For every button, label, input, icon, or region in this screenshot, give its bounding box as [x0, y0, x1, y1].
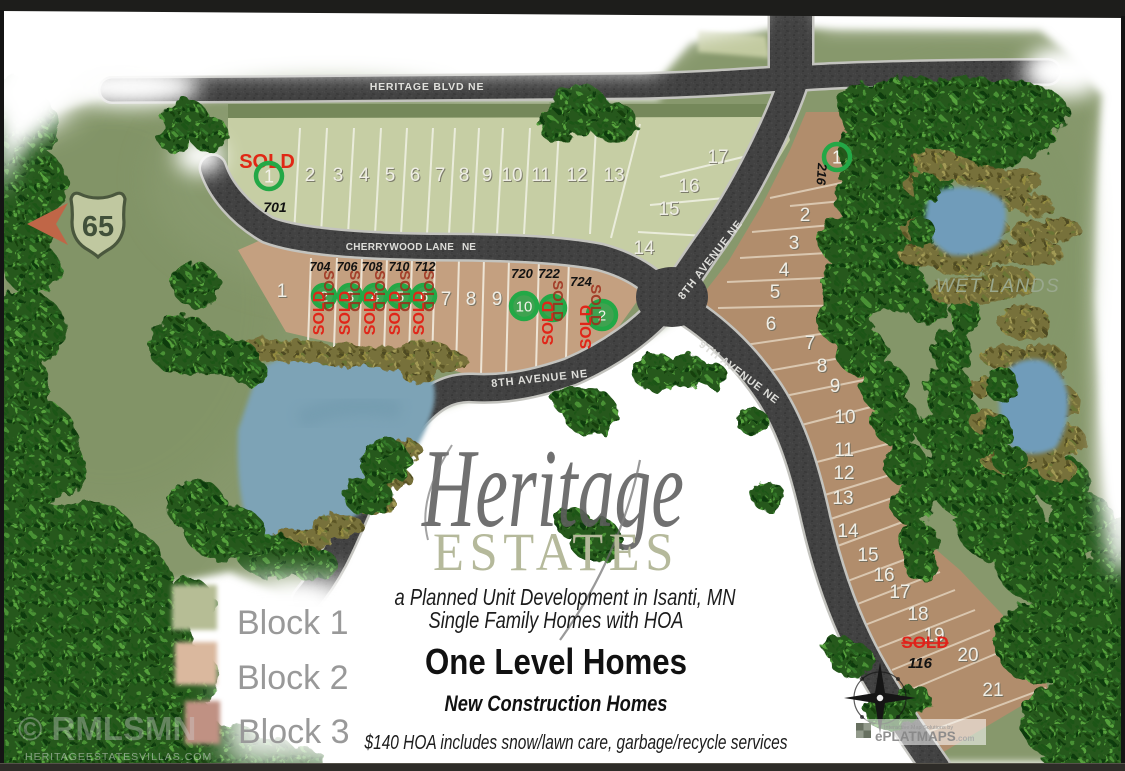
svg-text:15: 15	[857, 545, 878, 566]
svg-text:SOLD: SOLD	[337, 291, 354, 335]
svg-text:2: 2	[305, 165, 316, 186]
svg-text:16: 16	[678, 176, 699, 197]
svg-text:14: 14	[837, 521, 859, 542]
svg-text:8: 8	[817, 356, 828, 377]
svg-text:8: 8	[466, 289, 477, 310]
svg-text:3: 3	[789, 233, 800, 254]
svg-text:3: 3	[333, 165, 344, 186]
svg-text:10: 10	[834, 407, 855, 428]
svg-text:7: 7	[805, 333, 816, 354]
svg-text:CHERRYWOOD LANE: CHERRYWOOD LANE	[346, 242, 455, 253]
svg-text:701: 701	[263, 199, 287, 215]
svg-text:4: 4	[779, 260, 790, 281]
svg-text:710: 710	[389, 260, 410, 274]
svg-text:9: 9	[482, 165, 493, 186]
svg-text:$140 HOA includes snow/lawn ca: $140 HOA includes snow/lawn care, garbag…	[364, 732, 788, 754]
svg-text:712: 712	[415, 260, 436, 274]
svg-text:5: 5	[770, 282, 781, 303]
svg-text:4: 4	[359, 165, 370, 186]
svg-text:Block 1: Block 1	[237, 604, 349, 642]
svg-text:8: 8	[459, 165, 470, 186]
svg-text:18: 18	[907, 604, 928, 625]
svg-text:706: 706	[337, 260, 359, 274]
svg-text:12: 12	[566, 165, 587, 186]
svg-text:ESTATES: ESTATES	[433, 522, 679, 582]
svg-text:11: 11	[531, 165, 551, 186]
svg-text:116: 116	[908, 655, 933, 672]
svg-text:SOLD: SOLD	[578, 305, 595, 349]
svg-text:7: 7	[441, 289, 452, 310]
svg-text:Block 3: Block 3	[238, 713, 350, 751]
svg-text:SOLD: SOLD	[411, 291, 428, 335]
svg-text:SOLD: SOLD	[311, 291, 328, 335]
svg-text:SOLD: SOLD	[901, 633, 948, 652]
svg-text:1: 1	[277, 281, 288, 302]
svg-text:7: 7	[435, 165, 446, 186]
svg-text:NE: NE	[462, 242, 476, 253]
svg-text:HERITAGE BLVD NE: HERITAGE BLVD NE	[370, 81, 485, 93]
svg-text:13: 13	[832, 488, 853, 509]
svg-text:724: 724	[570, 274, 592, 289]
svg-text:One Level Homes: One Level Homes	[425, 641, 687, 682]
svg-text:12: 12	[833, 463, 854, 484]
svg-text:13: 13	[603, 165, 624, 186]
svg-text:HERITAGEESTATESVILLAS.COM: HERITAGEESTATESVILLAS.COM	[25, 751, 212, 763]
svg-text:11: 11	[834, 440, 854, 461]
svg-text:6: 6	[410, 165, 421, 186]
svg-text:17: 17	[707, 147, 728, 168]
svg-text:5: 5	[385, 165, 396, 186]
svg-text:SOLD: SOLD	[540, 301, 557, 345]
svg-text:New Construction Homes: New Construction Homes	[445, 691, 668, 716]
svg-text:Single Family Homes with HOA: Single Family Homes with HOA	[429, 607, 684, 633]
svg-text:SOLD: SOLD	[387, 291, 404, 335]
svg-text:21: 21	[982, 680, 1003, 701]
svg-text:SOLD: SOLD	[362, 291, 379, 335]
svg-text:216: 216	[813, 162, 830, 186]
svg-text:WET LANDS: WET LANDS	[936, 276, 1060, 297]
svg-text:2: 2	[800, 205, 811, 226]
svg-text:15: 15	[658, 199, 679, 220]
svg-text:10: 10	[501, 165, 522, 186]
svg-text:1: 1	[832, 147, 842, 167]
svg-text:10: 10	[516, 298, 533, 315]
svg-text:9: 9	[492, 289, 503, 310]
svg-text:1: 1	[264, 166, 274, 186]
svg-text:720: 720	[511, 266, 533, 281]
svg-text:722: 722	[538, 266, 560, 281]
svg-text:9: 9	[830, 376, 841, 397]
svg-text:14: 14	[633, 238, 655, 259]
svg-text:65: 65	[82, 211, 114, 243]
svg-text:708: 708	[362, 260, 383, 274]
svg-text:6: 6	[766, 314, 777, 335]
svg-text:© RMLSMN: © RMLSMN	[18, 710, 196, 747]
svg-text:704: 704	[310, 260, 331, 274]
svg-text:20: 20	[957, 645, 978, 666]
svg-text:17: 17	[889, 582, 910, 603]
svg-text:Block 2: Block 2	[237, 659, 349, 697]
